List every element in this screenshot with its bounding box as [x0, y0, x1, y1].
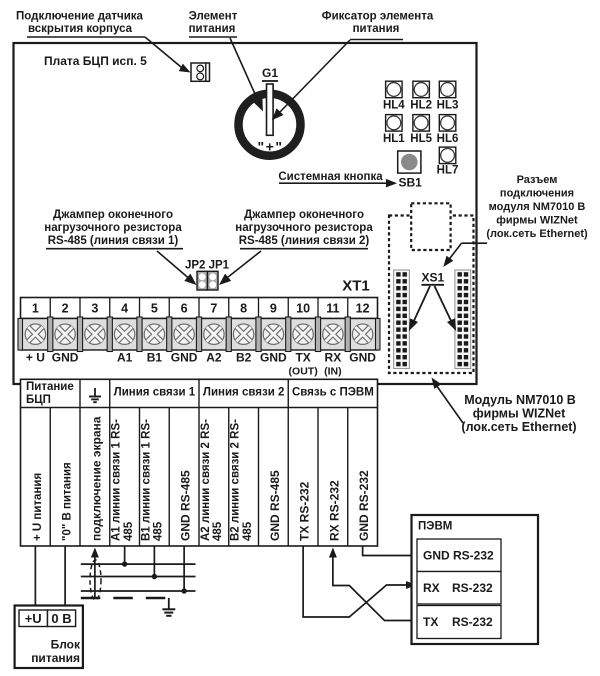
- svg-text:фирмы WIZNet: фирмы WIZNet: [473, 407, 566, 421]
- svg-text:HL5: HL5: [410, 133, 432, 145]
- svg-text:(лок.сеть Ethernet): (лок.сеть Ethernet): [461, 420, 576, 434]
- svg-text:(лок.сеть Ethernet): (лок.сеть Ethernet): [486, 228, 588, 240]
- svg-text:А2 линии связи 2 RS-: А2 линии связи 2 RS-: [200, 419, 212, 541]
- svg-text:GND RS-485: GND RS-485: [179, 470, 193, 541]
- svg-text:(OUT): (OUT): [289, 366, 318, 378]
- svg-text:TX: TX: [423, 615, 438, 629]
- svg-text:12: 12: [356, 302, 370, 316]
- svg-text:GND RS-232: GND RS-232: [357, 470, 371, 541]
- svg-text:подключение экрана: подключение экрана: [89, 416, 103, 541]
- svg-text:Подключение датчика: Подключение датчика: [16, 11, 144, 23]
- svg-text:Плата БЦП исп. 5: Плата БЦП исп. 5: [44, 54, 147, 68]
- svg-text:+ U питания: + U питания: [32, 473, 44, 541]
- svg-text:В2: В2: [236, 351, 252, 365]
- svg-text:Джампер оконечного: Джампер оконечного: [53, 209, 173, 221]
- svg-text:А1: А1: [117, 351, 133, 365]
- svg-text:XT1: XT1: [342, 278, 370, 295]
- svg-text:ПЭВМ: ПЭВМ: [418, 521, 452, 533]
- svg-text:А2: А2: [206, 351, 222, 365]
- svg-text:В1 линии связи 1 RS-: В1 линии связи 1 RS-: [140, 419, 152, 541]
- svg-text:GND RS-485: GND RS-485: [268, 470, 282, 541]
- svg-text:RX RS-232: RX RS-232: [327, 480, 341, 541]
- svg-text:Модуль NM7010 В: Модуль NM7010 В: [464, 393, 576, 407]
- svg-text:Джампер оконечного: Джампер оконечного: [244, 209, 364, 221]
- svg-text:БЦП: БЦП: [26, 394, 51, 406]
- svg-text:Связь с ПЭВМ: Связь с ПЭВМ: [292, 387, 374, 399]
- svg-text:TX RS-232: TX RS-232: [298, 481, 312, 541]
- svg-text:RX: RX: [423, 581, 440, 595]
- svg-text:А1 линии связи 1 RS-: А1 линии связи 1 RS-: [111, 419, 123, 541]
- svg-text:фирмы WIZNet: фирмы WIZNet: [496, 215, 578, 227]
- svg-text:1: 1: [32, 302, 39, 316]
- svg-text:вскрытия корпуса: вскрытия корпуса: [28, 23, 133, 35]
- svg-text:питания: питания: [189, 23, 236, 35]
- svg-text:XS1: XS1: [421, 271, 444, 285]
- svg-text:4: 4: [121, 302, 128, 316]
- svg-text:2: 2: [62, 302, 69, 316]
- svg-text:485: 485: [123, 521, 135, 541]
- svg-text:Элемент: Элемент: [189, 11, 238, 23]
- svg-text:RS-485 (линия связи 2): RS-485 (линия связи 2): [239, 235, 370, 247]
- svg-text:Линия связи 1: Линия связи 1: [114, 387, 196, 399]
- svg-text:GND RS-232: GND RS-232: [423, 549, 494, 563]
- svg-text:HL6: HL6: [437, 133, 459, 145]
- svg-text:RS-232: RS-232: [452, 615, 493, 629]
- svg-text:подключения: подключения: [500, 188, 574, 200]
- svg-text:GND: GND: [349, 351, 376, 365]
- svg-text:HL3: HL3: [437, 100, 459, 112]
- svg-text:8: 8: [240, 302, 247, 316]
- svg-text:питания: питания: [353, 23, 400, 35]
- svg-text:нагрузочного резистора: нагрузочного резистора: [44, 222, 182, 234]
- svg-text:HL4: HL4: [383, 100, 405, 112]
- svg-text:Питание: Питание: [26, 381, 74, 393]
- svg-text:+ U: + U: [26, 351, 45, 365]
- svg-text:TX: TX: [295, 351, 310, 365]
- svg-text:+U: +U: [25, 611, 42, 626]
- svg-text:485: 485: [212, 521, 224, 541]
- svg-text:7: 7: [210, 302, 217, 316]
- svg-text:Фиксатор элемента: Фиксатор элемента: [322, 11, 434, 23]
- svg-text:SB1: SB1: [399, 176, 423, 190]
- svg-text:10: 10: [296, 302, 310, 316]
- svg-text:485: 485: [242, 521, 254, 541]
- svg-text:Блок: Блок: [51, 638, 81, 652]
- svg-text:RS-232: RS-232: [452, 581, 493, 595]
- svg-text:GND: GND: [171, 351, 198, 365]
- svg-text:HL7: HL7: [437, 165, 459, 177]
- svg-text:нагрузочного резистора: нагрузочного резистора: [235, 222, 373, 234]
- svg-text:HL1: HL1: [383, 133, 405, 145]
- svg-text:Линия связи 2: Линия связи 2: [203, 387, 284, 399]
- svg-text:В2 линии связи 2 RS-: В2 линии связи 2 RS-: [230, 419, 242, 541]
- svg-text:"+": "+": [258, 139, 284, 155]
- svg-text:11: 11: [326, 302, 339, 316]
- svg-text:9: 9: [270, 302, 277, 316]
- svg-text:G1: G1: [262, 66, 278, 80]
- svg-text:(IN): (IN): [324, 366, 342, 378]
- svg-text:HL2: HL2: [410, 100, 432, 112]
- svg-text:5: 5: [151, 302, 158, 316]
- svg-text:Разъем: Разъем: [517, 174, 558, 186]
- svg-text:В1: В1: [147, 351, 163, 365]
- svg-text:RS-485 (линия связи 1): RS-485 (линия связи 1): [48, 235, 179, 247]
- svg-text:3: 3: [91, 302, 98, 316]
- svg-text:RX: RX: [325, 351, 342, 365]
- svg-text:JP2 JP1: JP2 JP1: [185, 260, 230, 272]
- svg-text:питания: питания: [31, 651, 80, 665]
- svg-text:"0" В питания: "0" В питания: [62, 462, 74, 541]
- svg-text:GND: GND: [260, 351, 287, 365]
- svg-text:485: 485: [153, 521, 165, 541]
- svg-text:6: 6: [181, 302, 188, 316]
- svg-text:GND: GND: [52, 351, 79, 365]
- svg-text:0 В: 0 В: [51, 611, 71, 626]
- svg-text:Системная кнопка: Системная кнопка: [278, 171, 383, 183]
- svg-text:модуля NM7010 В: модуля NM7010 В: [489, 201, 586, 213]
